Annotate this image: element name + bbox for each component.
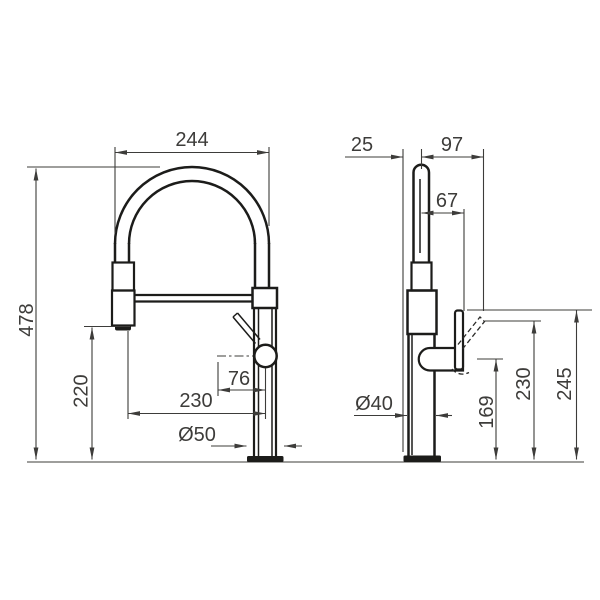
support-bar bbox=[134, 295, 253, 302]
dim-label-base-diameter: Ø50 bbox=[178, 424, 216, 446]
spout-left-tube bbox=[115, 243, 129, 263]
sprayhead-body bbox=[112, 291, 135, 326]
dim-label-reach: 230 bbox=[179, 390, 212, 412]
dim-label-outlet-height: 220 bbox=[71, 374, 93, 407]
dim-outlet-height: 220 bbox=[71, 327, 131, 460]
dim-label-total-height: 478 bbox=[16, 303, 38, 336]
dim-label-handle-offset: 67 bbox=[436, 190, 458, 212]
handle-lever-front bbox=[233, 313, 260, 344]
spout-arc-inner bbox=[129, 181, 255, 244]
dim-base-diameter: Ø50 bbox=[178, 424, 302, 446]
dim-handle-tilted-height: 230 bbox=[485, 321, 541, 460]
dim-label-handle-tilted-height: 230 bbox=[513, 367, 535, 400]
dim-body-height: 169 bbox=[476, 359, 503, 460]
side-view: 25 97 67 Ø40 169 230 bbox=[345, 134, 592, 462]
dim-label-outlet-offset: 76 bbox=[228, 368, 250, 390]
dim-label-side-total-height: 245 bbox=[554, 367, 576, 400]
faucet-dimension-drawing-page: 244 478 220 230 76 Ø bbox=[0, 0, 600, 600]
sprayhead-holder bbox=[113, 263, 135, 291]
swivel-joint-circle bbox=[254, 345, 276, 367]
faucet-dimension-drawing: 244 478 220 230 76 Ø bbox=[0, 0, 600, 600]
dim-back-offset: 25 bbox=[345, 134, 422, 169]
neck-block bbox=[412, 263, 432, 291]
base-plate-front bbox=[247, 456, 284, 462]
upper-body-block bbox=[408, 291, 437, 335]
spout-tube-side bbox=[414, 165, 430, 263]
sprayhead-nozzle-tip bbox=[115, 325, 131, 331]
dim-label-body-height: 169 bbox=[476, 395, 498, 428]
dim-label-front-reach: 97 bbox=[441, 134, 463, 156]
dim-label-back-offset: 25 bbox=[351, 134, 373, 156]
dim-label-body-diameter: Ø40 bbox=[355, 393, 393, 415]
spout-right-tube bbox=[255, 243, 269, 289]
spout-arc-outer bbox=[115, 167, 269, 244]
dim-label-arc-width: 244 bbox=[175, 129, 208, 151]
handle-lever-side bbox=[455, 311, 463, 370]
column-top-body bbox=[253, 288, 278, 308]
front-view: 244 478 220 230 76 Ø bbox=[16, 129, 584, 462]
base-plate-side bbox=[404, 456, 442, 463]
